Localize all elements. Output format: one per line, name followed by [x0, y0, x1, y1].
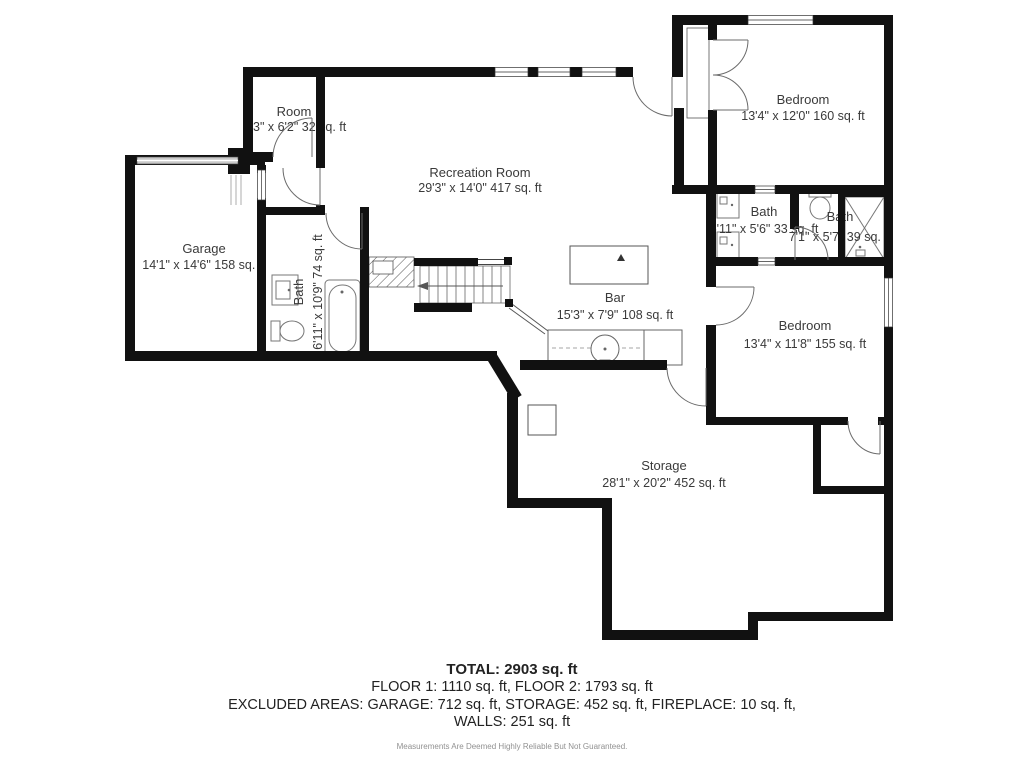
bedroom1-label: Bedroom — [777, 92, 830, 107]
floor-areas: FLOOR 1: 1110 sq. ft, FLOOR 2: 1793 sq. … — [0, 679, 1024, 697]
toilet — [271, 321, 304, 341]
door-storage — [667, 368, 706, 406]
walls-area: WALLS: 251 sq. ft — [0, 714, 1024, 732]
window — [748, 16, 813, 25]
window — [495, 68, 528, 77]
door-bedroom2-closet — [848, 421, 880, 454]
window — [582, 68, 616, 77]
garage-label: Garage — [182, 241, 225, 256]
bath2-label: Bath — [751, 204, 778, 219]
stair-direction-arrow — [417, 282, 428, 290]
bedroom2-dims: 13'4" x 11'8" 155 sq. ft — [744, 337, 867, 351]
storage-dims: 28'1" x 20'2" 452 sq. ft — [602, 476, 726, 490]
bedroom1-dims: 13'4" x 12'0" 160 sq. ft — [741, 109, 865, 123]
excluded-areas: EXCLUDED AREAS: GARAGE: 712 sq. ft, STOR… — [0, 697, 1024, 715]
window — [538, 68, 570, 77]
floor-plan-svg: Room 3" x 6'2" 32 sq. ft Recreation Room… — [0, 0, 1024, 768]
door-entry — [283, 168, 320, 205]
shower — [845, 197, 884, 259]
recreation-label: Recreation Room — [429, 165, 530, 180]
support-pillar — [528, 405, 556, 435]
garage-door — [137, 157, 238, 164]
garage-dims: 14'1" x 14'6" 158 sq. ft — [142, 258, 266, 272]
fireplace — [570, 246, 648, 284]
storage-label: Storage — [641, 458, 687, 473]
bedroom2-label: Bedroom — [779, 318, 832, 333]
front-door-opening — [258, 170, 266, 200]
bath1-label: Bath — [291, 279, 306, 306]
area-summary: TOTAL: 2903 sq. ft FLOOR 1: 1110 sq. ft,… — [0, 661, 1024, 752]
understair-hatch — [369, 257, 414, 287]
railing — [505, 299, 548, 334]
door-rec-hall — [633, 77, 672, 116]
room-label: Room — [277, 104, 312, 119]
room-dims: 3" x 6'2" 32 sq. ft — [253, 120, 347, 134]
double-closet-doors — [713, 40, 748, 110]
disclaimer: Measurements Are Deemed Highly Reliable … — [0, 742, 1024, 752]
total-area: TOTAL: 2903 sq. ft — [0, 661, 1024, 679]
cased-opening — [755, 186, 775, 193]
bathtub — [325, 280, 360, 357]
window — [885, 278, 893, 327]
door-bath1 — [326, 213, 362, 249]
bar-dims: 15'3" x 7'9" 108 sq. ft — [557, 308, 674, 322]
cased-opening — [758, 258, 775, 265]
floor-plan-page: Room 3" x 6'2" 32 sq. ft Recreation Room… — [0, 0, 1024, 768]
recreation-dims: 29'3" x 14'0" 417 sq. ft — [418, 181, 542, 195]
bar-label: Bar — [605, 290, 626, 305]
bath1-dims: 6'11" x 10'9" 74 sq. ft — [311, 234, 325, 350]
door-bedroom2 — [716, 287, 754, 325]
wardrobe — [687, 28, 709, 118]
